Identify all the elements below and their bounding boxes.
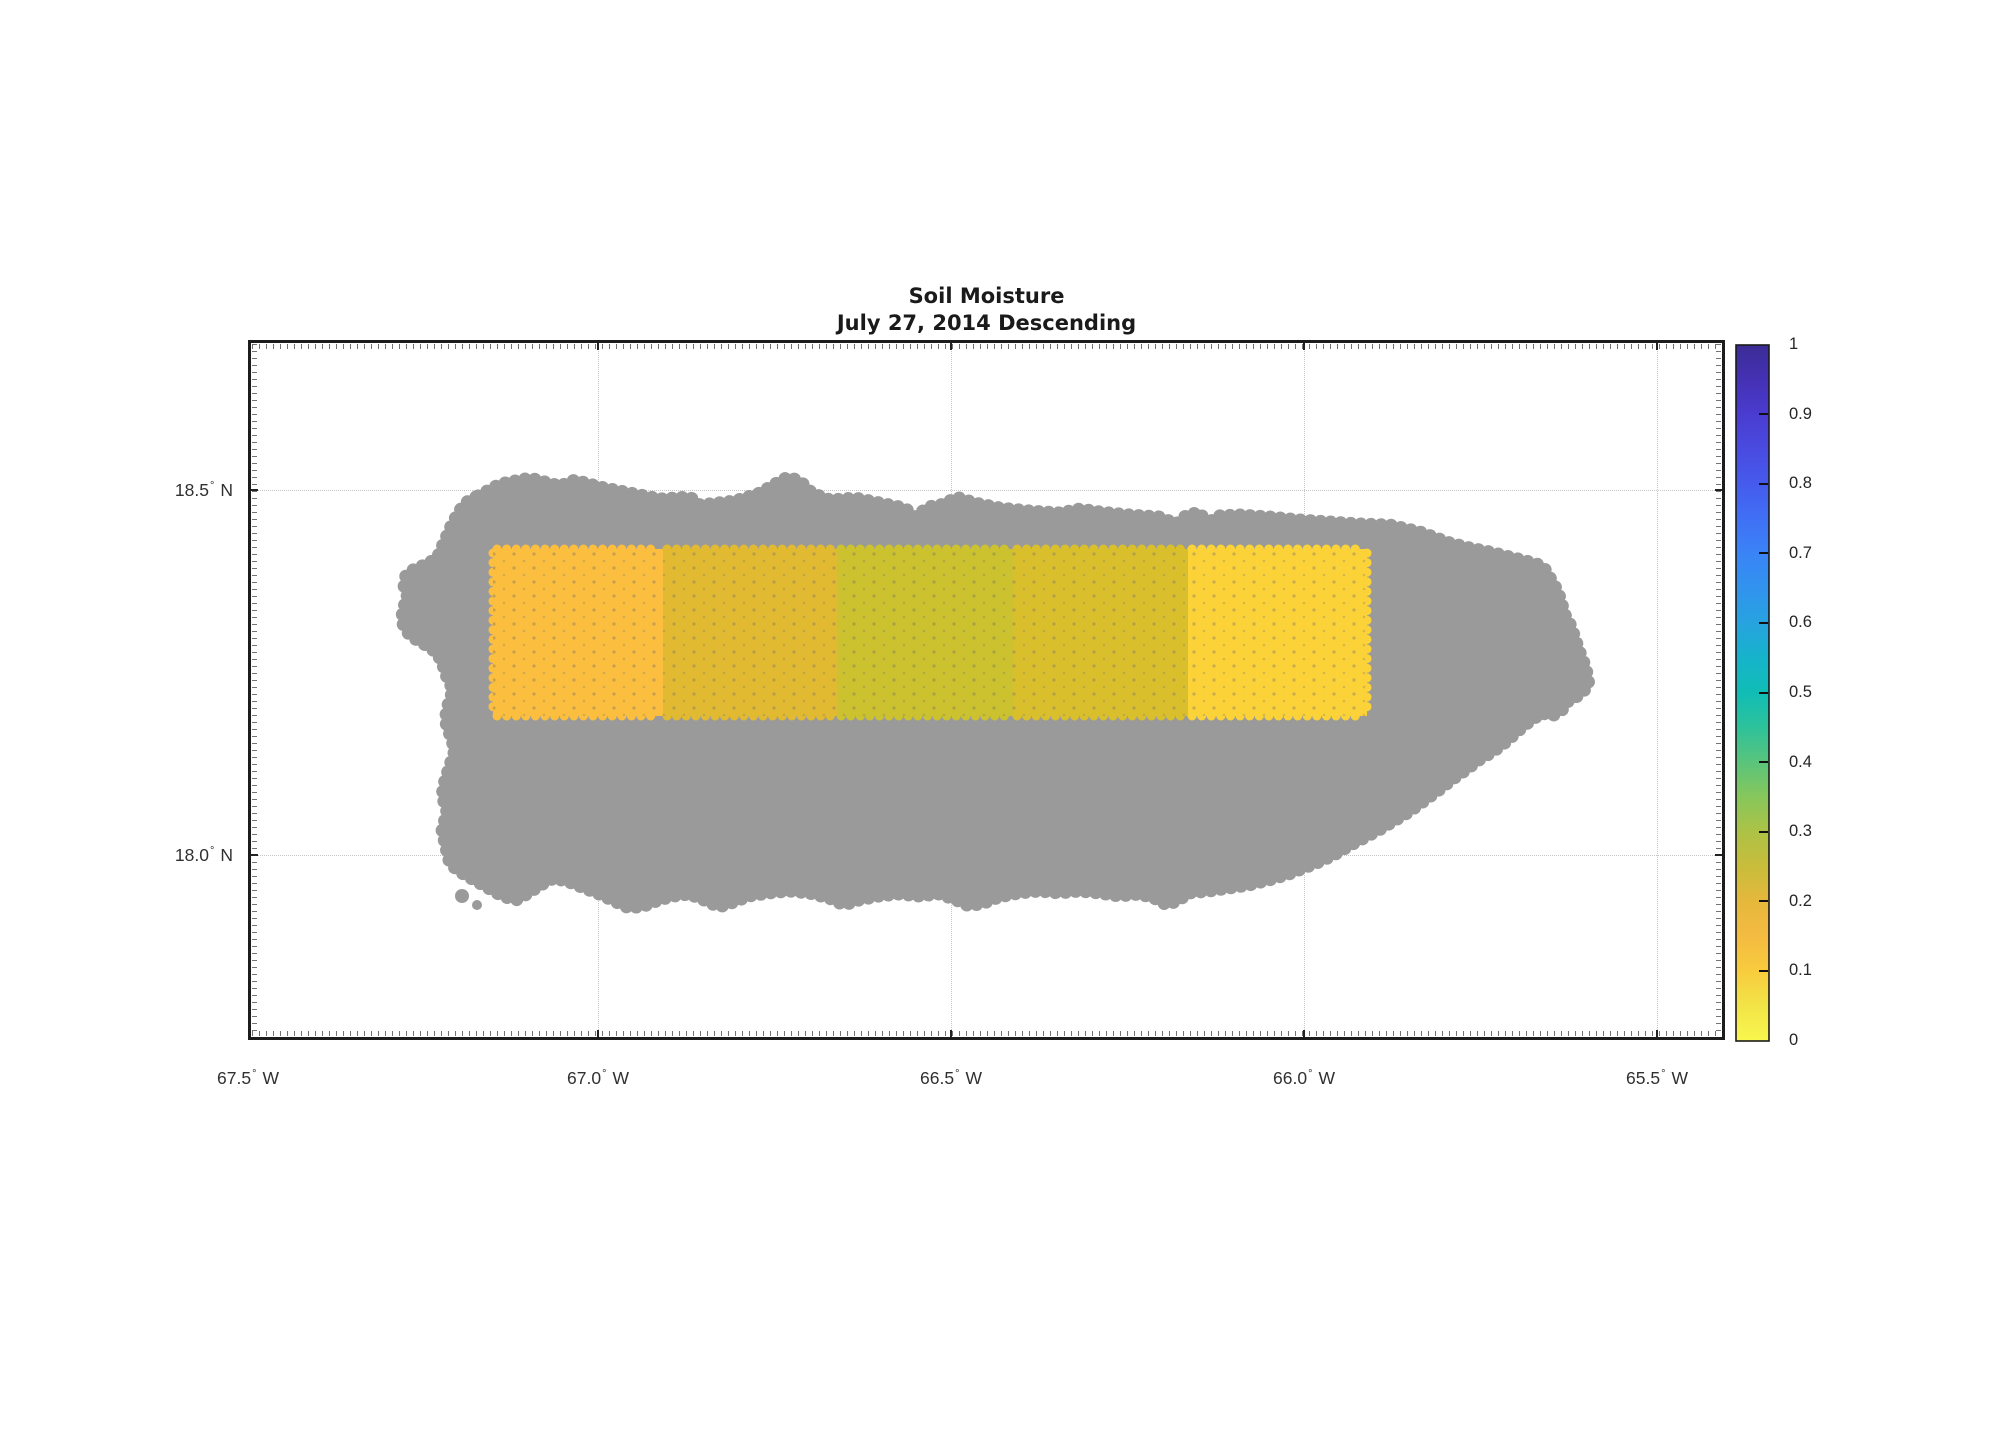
x-tick-label-66.5W: 66.5°W bbox=[881, 1068, 1021, 1089]
cell-dot-grid-overlay bbox=[493, 549, 1367, 716]
x-tick-value: 67.5 bbox=[217, 1068, 251, 1088]
x-tick-label-66.0W: 66.0°W bbox=[1234, 1068, 1374, 1089]
chart-title-line2: July 27, 2014 Descending bbox=[248, 310, 1725, 337]
hemisphere-label: W bbox=[262, 1068, 279, 1088]
islet-southwest-2 bbox=[472, 900, 482, 910]
major-tick-top-65.5W bbox=[1656, 340, 1658, 350]
hemisphere-label: W bbox=[965, 1068, 982, 1088]
colorbar-tick-0.2 bbox=[1759, 900, 1768, 902]
colorbar-tick-0.1 bbox=[1759, 970, 1768, 972]
major-tick-bottom-66.5W bbox=[950, 1030, 952, 1040]
colorbar-tick-0.4 bbox=[1759, 761, 1768, 763]
major-tick-top-67.0W bbox=[597, 340, 599, 350]
major-tick-top-66.5W bbox=[950, 340, 952, 350]
minor-ticks-right bbox=[1716, 344, 1721, 1036]
minor-ticks-top bbox=[252, 344, 1721, 349]
y-tick-value: 18.0 bbox=[175, 845, 209, 865]
colorbar-label-0.5: 0.5 bbox=[1789, 682, 1849, 702]
colorbar-tick-0.8 bbox=[1759, 483, 1768, 485]
major-tick-bottom-65.5W bbox=[1656, 1030, 1658, 1040]
degree-symbol: ° bbox=[210, 845, 214, 857]
minor-ticks-left bbox=[252, 344, 257, 1036]
hemisphere-label: N bbox=[220, 480, 233, 500]
hemisphere-label: W bbox=[612, 1068, 629, 1088]
major-tick-bottom-67.0W bbox=[597, 1030, 599, 1040]
x-tick-label-65.5W: 65.5°W bbox=[1587, 1068, 1727, 1089]
hemisphere-label: W bbox=[1318, 1068, 1335, 1088]
y-tick-label-18.0N: 18.0°N bbox=[88, 844, 233, 866]
map-plot-area bbox=[248, 340, 1725, 1040]
colorbar-label-1: 1 bbox=[1789, 334, 1849, 354]
islet-southwest-1 bbox=[455, 889, 469, 903]
colorbar-tick-0.5 bbox=[1759, 692, 1768, 694]
colorbar bbox=[1735, 344, 1771, 1043]
colorbar-tick-0.3 bbox=[1759, 831, 1768, 833]
major-tick-bottom-66.0W bbox=[1303, 1030, 1305, 1040]
y-tick-value: 18.5 bbox=[175, 480, 209, 500]
colorbar-label-0.1: 0.1 bbox=[1789, 960, 1849, 980]
degree-symbol: ° bbox=[210, 480, 214, 492]
y-tick-label-18.5N: 18.5°N bbox=[88, 479, 233, 501]
colorbar-label-0: 0 bbox=[1789, 1030, 1849, 1050]
colorbar-label-0.6: 0.6 bbox=[1789, 612, 1849, 632]
major-tick-right-18.5N bbox=[1715, 489, 1725, 491]
x-tick-value: 65.5 bbox=[1626, 1068, 1660, 1088]
major-tick-right-18.0N bbox=[1715, 854, 1725, 856]
colorbar-label-0.7: 0.7 bbox=[1789, 543, 1849, 563]
x-tick-label-67.5W: 67.5°W bbox=[178, 1068, 318, 1089]
x-tick-value: 66.5 bbox=[920, 1068, 954, 1088]
colorbar-tick-0.9 bbox=[1759, 413, 1768, 415]
colorbar-tick-0.7 bbox=[1759, 552, 1768, 554]
degree-symbol: ° bbox=[252, 1068, 256, 1080]
colorbar-label-0.8: 0.8 bbox=[1789, 473, 1849, 493]
x-tick-value: 66.0 bbox=[1273, 1068, 1307, 1088]
degree-symbol: ° bbox=[1661, 1068, 1665, 1080]
x-tick-label-67.0W: 67.0°W bbox=[528, 1068, 668, 1089]
figure-canvas: Soil Moisture July 27, 2014 Descending bbox=[0, 0, 1991, 1433]
degree-symbol: ° bbox=[602, 1068, 606, 1080]
major-tick-left-18.0N bbox=[248, 854, 258, 856]
major-tick-top-66.0W bbox=[1303, 340, 1305, 350]
hemisphere-label: W bbox=[1671, 1068, 1688, 1088]
colorbar-label-0.2: 0.2 bbox=[1789, 891, 1849, 911]
degree-symbol: ° bbox=[955, 1068, 959, 1080]
chart-title: Soil Moisture July 27, 2014 Descending bbox=[248, 283, 1725, 337]
minor-ticks-bottom bbox=[252, 1031, 1721, 1036]
hemisphere-label: N bbox=[220, 845, 233, 865]
chart-title-line1: Soil Moisture bbox=[248, 283, 1725, 310]
degree-symbol: ° bbox=[1308, 1068, 1312, 1080]
major-tick-left-18.5N bbox=[248, 489, 258, 491]
colorbar-label-0.4: 0.4 bbox=[1789, 752, 1849, 772]
colorbar-label-0.3: 0.3 bbox=[1789, 821, 1849, 841]
puerto-rico-map bbox=[248, 340, 1725, 1040]
x-tick-value: 67.0 bbox=[567, 1068, 601, 1088]
colorbar-tick-0.6 bbox=[1759, 622, 1768, 624]
colorbar-label-0.9: 0.9 bbox=[1789, 404, 1849, 424]
